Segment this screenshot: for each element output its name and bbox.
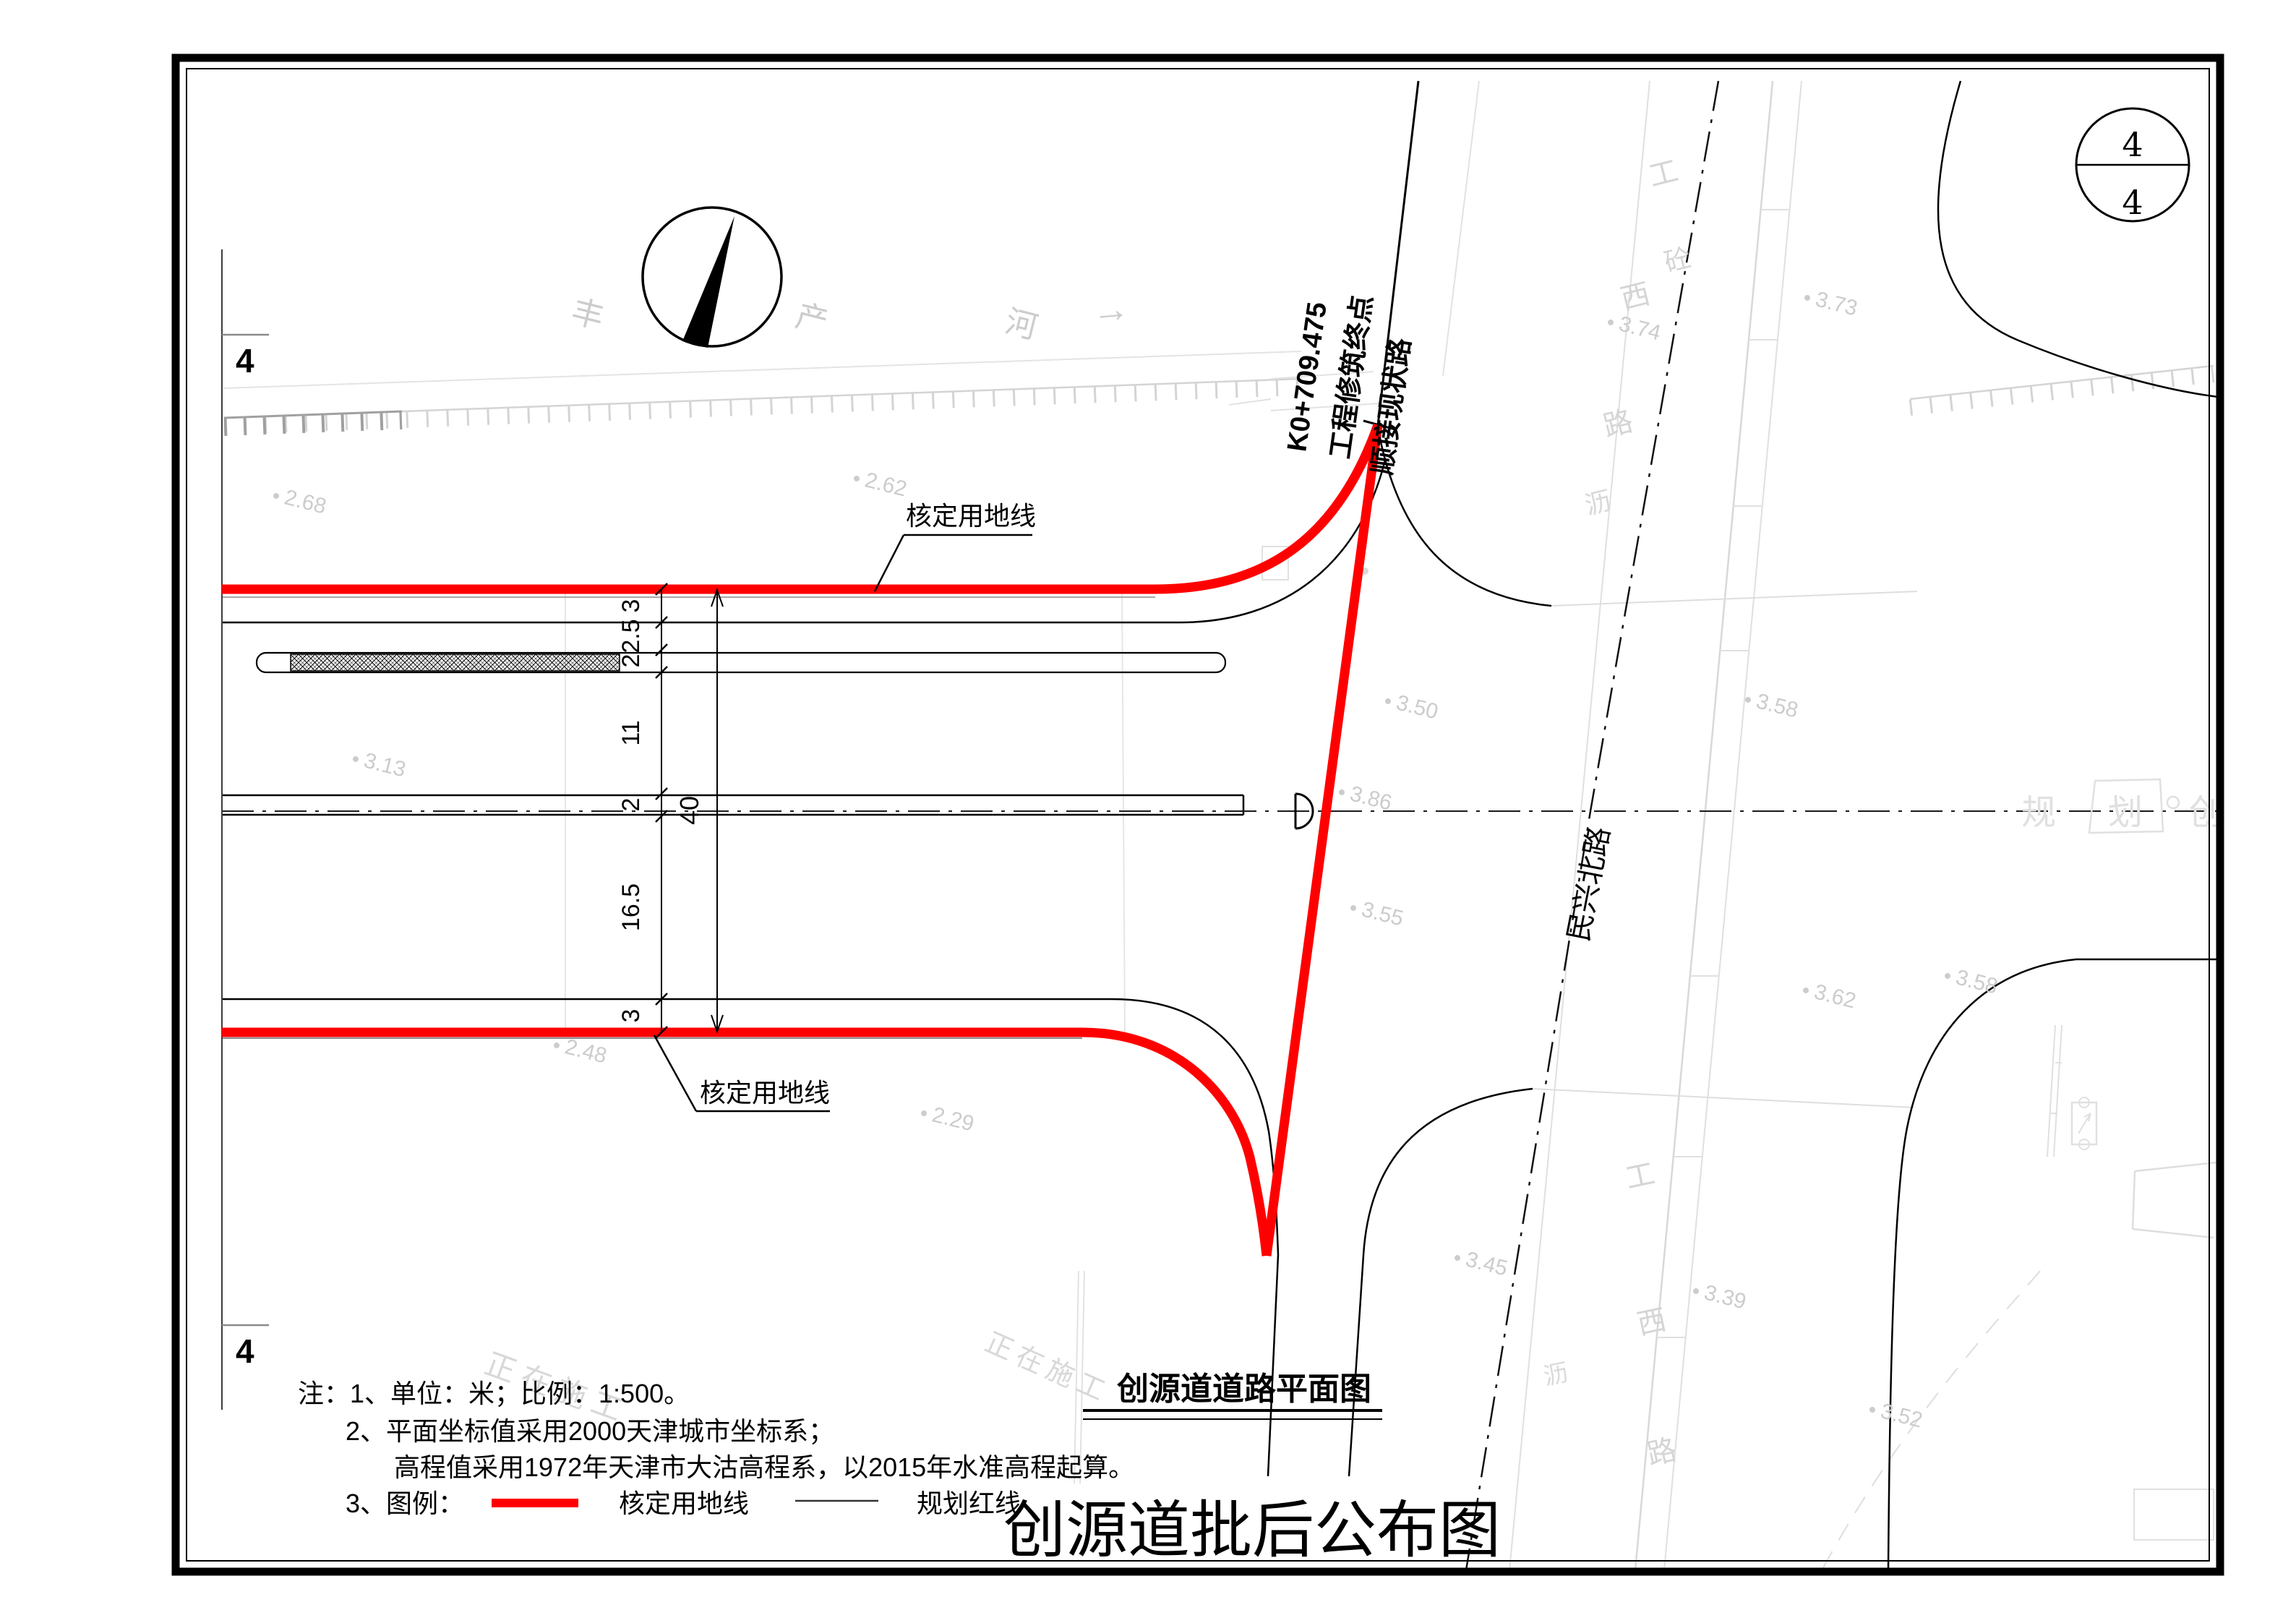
drawing-canvas: 3 2.5 2 11 2 16.5 3 40 4 4 4 4 核定用地线 核定用… (0, 0, 2296, 1623)
road-top-char-3: 西 (1618, 278, 1653, 315)
sheet-number-badge: 4 4 (2076, 108, 2189, 222)
elevation-point: 3.52 (1867, 1397, 1924, 1433)
elevation-value: 3.58 (1953, 965, 2000, 998)
endpoint-line3-text: 顺接现状路 (1367, 335, 1416, 476)
river-bank-hatch-ticks (224, 387, 1301, 427)
elevation-point: 2.48 (551, 1032, 609, 1069)
river-bank-dark-segment (224, 411, 402, 418)
elevation-value: 3.13 (361, 748, 408, 781)
approved-line-north (222, 425, 1378, 589)
planning-strip-dot (2167, 797, 2179, 808)
approved-land-lines-layer (222, 425, 1378, 1256)
elevation-value: 3.86 (1348, 781, 1395, 815)
dim-label-6: 3 (617, 1009, 645, 1023)
under-construction-text-2: 正在施工 (980, 1327, 1114, 1409)
road-bottom-char-3: 路 (1645, 1434, 1679, 1470)
road-bottom-char-1: 工 (1623, 1157, 1658, 1194)
elevation-value: 2.62 (862, 468, 909, 501)
elevation-point: 3.74 (1605, 309, 1663, 346)
bank-ticks-right (1910, 374, 2214, 408)
river-char-1: 丰 (568, 294, 608, 335)
road-top-char-5: 沥 (1582, 485, 1614, 520)
planning-line-north (222, 460, 1385, 622)
elevation-layer: 2.62 2.68 3.13 2.48 2.29 3.50 3.86 3.55 … (270, 285, 2000, 1433)
approved-line-south (222, 1032, 1267, 1256)
elevation-point: 2.68 (270, 483, 328, 519)
elevation-value: 3.50 (1394, 690, 1441, 724)
sheet-number-bottom: 4 (2122, 183, 2143, 222)
elevation-value: 3.74 (1616, 312, 1663, 345)
north-arrow (643, 207, 781, 348)
elevation-value: 3.52 (1878, 1399, 1925, 1432)
river-bank-upper-line (224, 351, 1301, 388)
bank-line-right (1910, 366, 2214, 399)
dim-label-2: 2 (617, 654, 645, 668)
existing-road-edge-east2 (1664, 81, 1802, 1570)
plan-title-block: 创源道道路平面图 (1083, 1371, 1382, 1419)
elevation-point: 3.58 (1942, 963, 2000, 999)
faint-box-bottom-right (2134, 1489, 2214, 1540)
elevation-point: 3.62 (1800, 977, 1858, 1014)
legend-approved-label: 核定用地线 (619, 1489, 749, 1518)
lightning-arrow-icon (2078, 1113, 2091, 1134)
publication-title: 创源道批后公布图 (1003, 1494, 1501, 1567)
faint-shed-outline (2133, 1162, 2216, 1238)
road-top-char-1: 工 (1646, 155, 1682, 192)
elevation-point: 3.50 (1382, 688, 1440, 724)
elevation-point: 2.62 (851, 466, 909, 502)
dim-label-1: 2.5 (617, 619, 645, 653)
match-line-label-bottom: 4 (236, 1332, 254, 1370)
note-line-2: 2、平面坐标值采用2000天津城市坐标系； (346, 1416, 834, 1446)
river-char-2: 产 (792, 298, 832, 340)
elevation-value: 2.48 (562, 1035, 609, 1068)
endpoint-text-block: K0+709.475 工程修筑终点 顺接现状路 (1282, 294, 1416, 477)
approved-line-label-bottom: 核定用地线 (700, 1078, 830, 1108)
north-arrow-needle-icon (682, 216, 734, 348)
elevation-value: 2.29 (930, 1102, 977, 1136)
elevation-point: 3.39 (1690, 1278, 1748, 1314)
sheet-number-top: 4 (2122, 125, 2143, 164)
road-bottom-char-2: 西 (1635, 1303, 1669, 1340)
elevation-point: 3.73 (1802, 285, 1859, 321)
elevation-point: 2.29 (918, 1100, 976, 1136)
south-leg-east-edge (1349, 1255, 1363, 1476)
annotation-layer: 核定用地线 核定用地线 K0+709.475 工程修筑终点 顺接现状路 民兴北路 (654, 294, 1616, 1111)
elevation-value: 3.45 (1463, 1247, 1510, 1280)
planning-lines-layer (222, 81, 2218, 1570)
note-line-1: 注：1、单位：米；比例：1:500。 (298, 1379, 690, 1408)
faint-dashed-curve (1822, 1271, 2040, 1570)
river-flow-arrow-icon: → (1090, 288, 1131, 333)
dim-label-0: 3 (617, 599, 645, 613)
sliver-structure (2047, 1025, 2062, 1157)
dim-label-5: 16.5 (617, 883, 645, 931)
road-name-minxing: 民兴北路 (1563, 824, 1616, 943)
approved-line-label-top: 核定用地线 (906, 501, 1036, 531)
crosshatch-strip (291, 654, 620, 671)
plan-title: 创源道道路平面图 (1117, 1371, 1371, 1407)
river-bank-dark-ticks (224, 421, 402, 427)
existing-road-edge-east1 (1635, 81, 1773, 1570)
existing-features-layer (224, 81, 2216, 1570)
planning-strip-char-1: 规 (2021, 794, 2056, 832)
elevation-point: 3.45 (1452, 1245, 1509, 1281)
planning-strip-char-2: 划 (2108, 794, 2143, 832)
elevation-point: 3.86 (1336, 779, 1394, 815)
elevation-point: 3.58 (1742, 687, 1800, 723)
note-line-3: 高程值采用1972年天津市大沽高程系，以2015年水准高程起算。 (394, 1452, 1134, 1482)
elevation-point: 3.13 (350, 746, 408, 782)
elevation-value: 3.58 (1754, 689, 1801, 722)
diagonal-road-far-edge (1443, 81, 1479, 376)
road-bottom-char-4: 沥 (1541, 1359, 1571, 1391)
east-leg-edge-north (1551, 591, 1917, 606)
east-leg-edge-south (1533, 1089, 1914, 1108)
leader-top (875, 535, 1032, 591)
fillet-northeast (1379, 435, 1551, 606)
elevation-value: 3.73 (1813, 287, 1860, 320)
legend: 核定用地线 规划红线 (492, 1489, 1021, 1518)
match-line-label-top: 4 (236, 342, 254, 380)
existing-road-crossbars (1657, 210, 1790, 1337)
elevation-value: 3.39 (1702, 1280, 1749, 1314)
dim-label-4: 2 (617, 798, 645, 812)
elevation-value: 3.55 (1359, 897, 1406, 930)
elevation-value: 3.62 (1812, 980, 1859, 1013)
fillet-southeast (1363, 1089, 1533, 1255)
elevation-value: 2.68 (282, 485, 329, 518)
south-leg-west-edge (1268, 1255, 1278, 1476)
dim-label-3: 11 (617, 720, 645, 745)
road-top-char-4: 路 (1601, 405, 1636, 442)
centerline-minxing (1466, 81, 1718, 1570)
drawing-sheet: 3 2.5 2 11 2 16.5 3 40 4 4 4 4 核定用地线 核定用… (0, 0, 2296, 1623)
approved-line-diagonal (1267, 425, 1378, 1256)
note-line-4: 3、图例： (346, 1489, 464, 1518)
dim-label-total: 40 (674, 796, 704, 825)
river-char-3: 河 (1002, 304, 1042, 346)
elevation-point: 3.55 (1348, 895, 1405, 931)
